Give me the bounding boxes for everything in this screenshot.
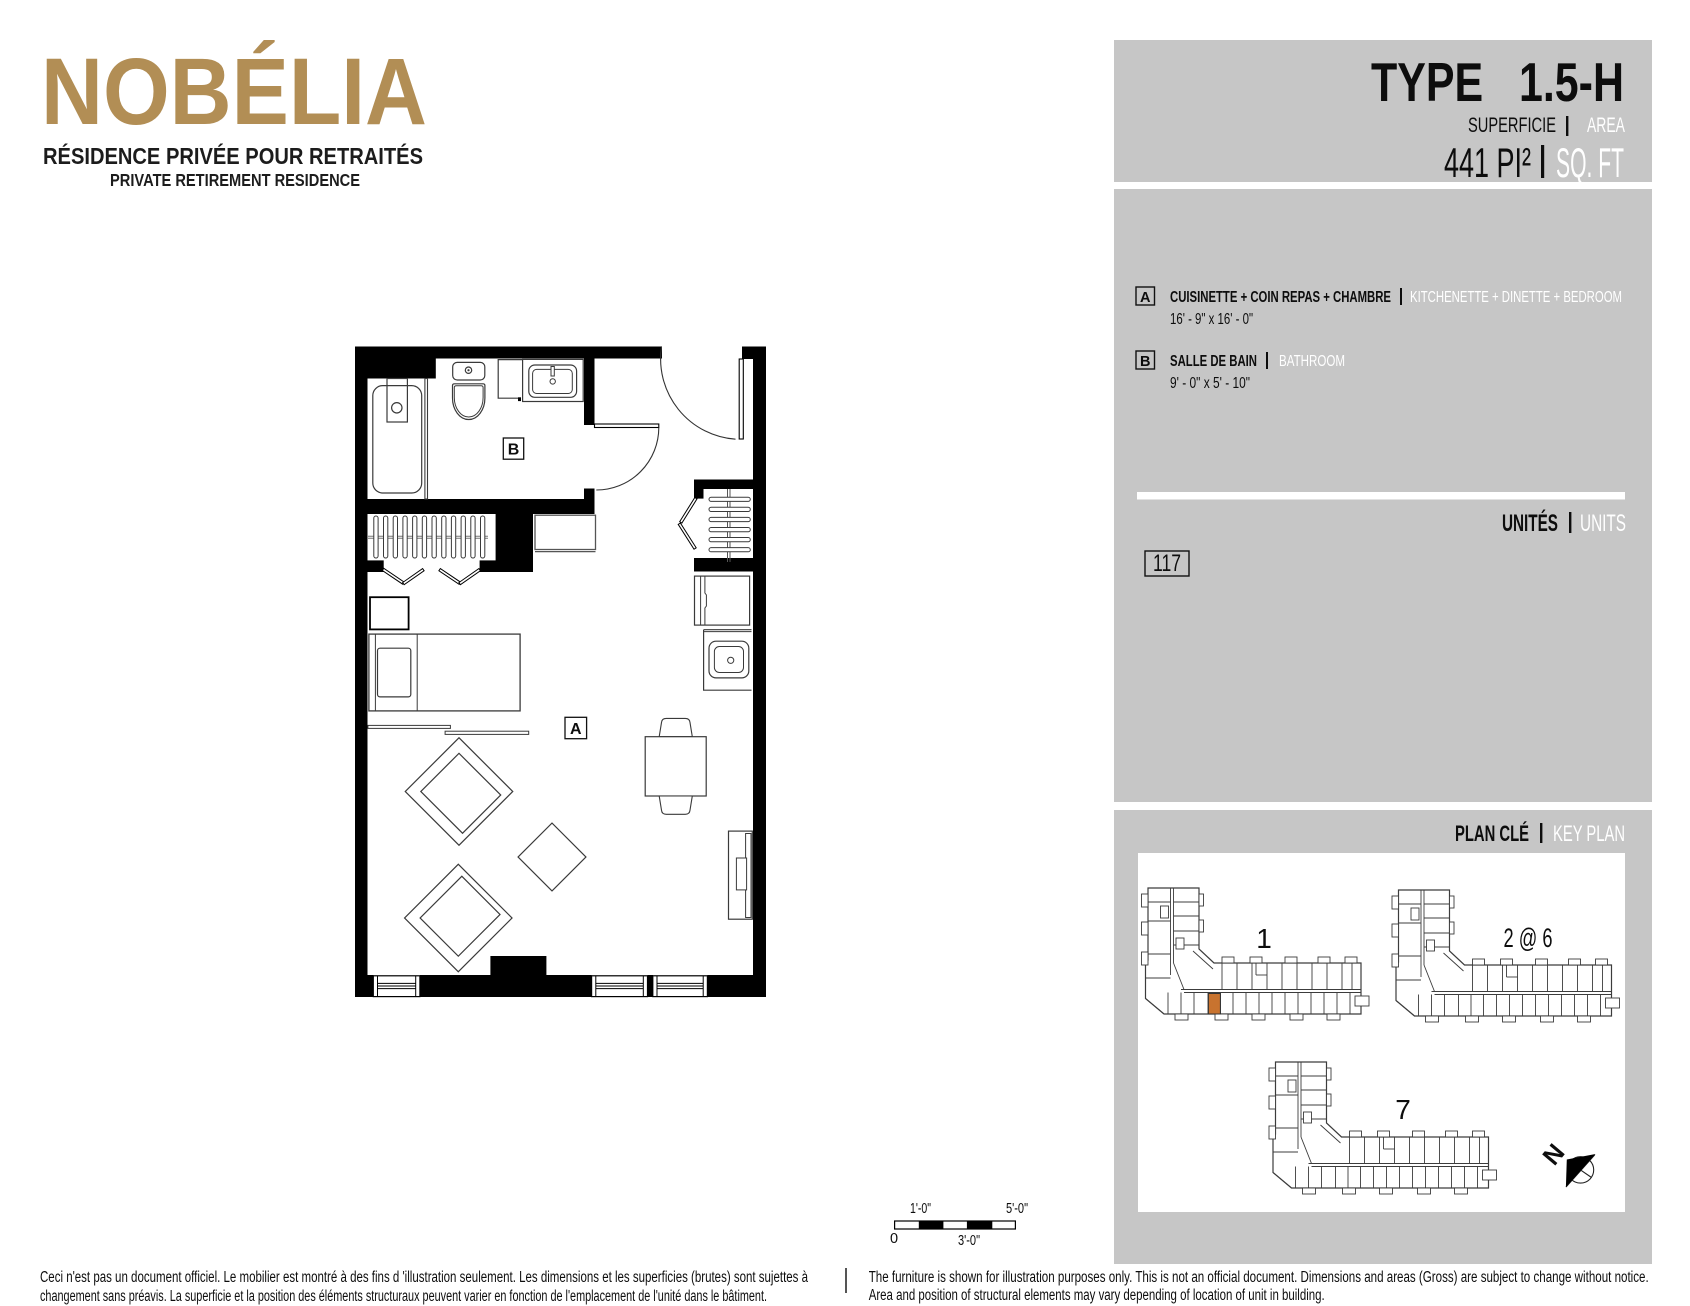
svg-text:SALLE DE BAIN: SALLE DE BAIN — [1170, 353, 1257, 370]
svg-text:changement sans préavis. La su: changement sans préavis. La superficie e… — [40, 1288, 767, 1305]
svg-text:A: A — [1140, 290, 1151, 306]
svg-text:AREA: AREA — [1587, 113, 1625, 137]
svg-text:PLAN CLÉ: PLAN CLÉ — [1455, 821, 1529, 846]
svg-text:441 PI²: 441 PI² — [1444, 139, 1531, 186]
svg-text:16' - 9" x 16' - 0": 16' - 9" x 16' - 0" — [1170, 311, 1253, 328]
svg-text:The furniture is shown for ill: The furniture is shown for illustration … — [869, 1269, 1649, 1286]
svg-text:KITCHENETTE + DINETTE + BEDROO: KITCHENETTE + DINETTE + BEDROOM — [1410, 289, 1622, 306]
svg-text:2 @ 6: 2 @ 6 — [1504, 923, 1553, 953]
svg-text:B: B — [508, 442, 520, 459]
svg-text:Ceci n'est pas un document off: Ceci n'est pas un document officiel. Le … — [40, 1269, 808, 1286]
svg-text:PRIVATE RETIREMENT RESIDENCE: PRIVATE RETIREMENT RESIDENCE — [110, 170, 360, 190]
svg-text:CUISINETTE + COIN REPAS + CHAM: CUISINETTE + COIN REPAS + CHAMBRE — [1170, 289, 1391, 306]
svg-text:SQ. FT: SQ. FT — [1556, 139, 1624, 186]
svg-text:1'-0": 1'-0" — [910, 1201, 931, 1217]
svg-text:Area and position of structura: Area and position of structural elements… — [869, 1287, 1325, 1304]
svg-text:NOBÉLIA: NOBÉLIA — [41, 39, 427, 145]
svg-text:5'-0": 5'-0" — [1006, 1201, 1028, 1217]
svg-text:7: 7 — [1395, 1094, 1411, 1125]
svg-text:117: 117 — [1153, 550, 1181, 577]
svg-text:9' - 0" x 5' - 10": 9' - 0" x 5' - 10" — [1170, 375, 1250, 392]
svg-text:KEY PLAN: KEY PLAN — [1553, 821, 1625, 846]
svg-text:1: 1 — [1256, 923, 1272, 954]
svg-text:0: 0 — [890, 1231, 898, 1247]
svg-text:B: B — [1140, 354, 1150, 370]
svg-text:RÉSIDENCE PRIVÉE POUR RETRAITÉ: RÉSIDENCE PRIVÉE POUR RETRAITÉS — [43, 142, 423, 169]
svg-text:SUPERFICIE: SUPERFICIE — [1468, 113, 1556, 137]
svg-text:TYPE 1.5-H: TYPE 1.5-H — [1371, 51, 1624, 113]
svg-text:UNITS: UNITS — [1580, 510, 1626, 537]
svg-text:UNITÉS: UNITÉS — [1502, 509, 1558, 537]
svg-text:BATHROOM: BATHROOM — [1279, 353, 1345, 370]
svg-text:3'-0": 3'-0" — [958, 1233, 980, 1249]
svg-text:A: A — [570, 721, 582, 738]
